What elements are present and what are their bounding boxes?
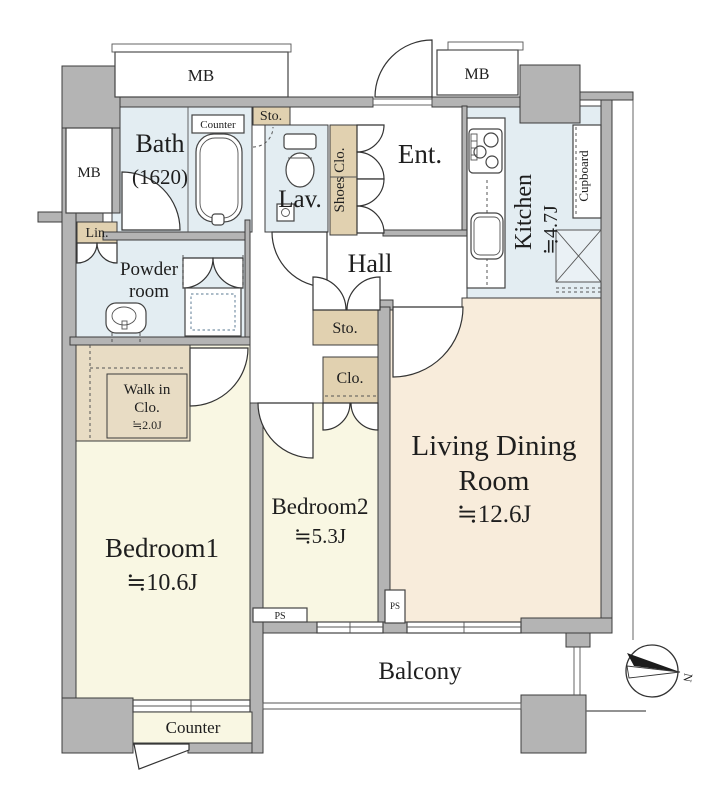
meter-box-right-label: MB [465,66,490,83]
storage-top-label: Sto. [260,109,282,124]
wall-top [120,97,373,107]
wall-right [601,100,612,633]
wall-entrance-kitchen [462,106,467,232]
entrance-door-arc [375,40,432,97]
powder-room-label-1: Powder [120,259,179,280]
meter-box-left-label: MB [77,165,100,181]
bedroom1-balcony-door [134,744,189,769]
wall-entrance-hall [383,230,467,236]
wall-bottomleft-column [62,698,133,753]
meter-box-right-trim [448,42,523,50]
bedroom-counter-label: Counter [166,718,221,737]
wall-bottom-c [521,618,612,633]
walk-in-closet-area-label: ≒2.0J [132,418,162,432]
living-dining-label-1: Living Dining [411,430,576,462]
wall-topleft-column [62,66,120,128]
linen-label: Lin. [86,226,109,241]
pipe-space-label-1: PS [274,611,285,622]
bath-label: Bath [135,129,184,158]
meter-box-top-trim [112,44,291,52]
balcony-bottom-rail [263,703,521,709]
bedroom2-label: Bedroom2 [271,494,368,519]
wall-top-2 [432,97,520,107]
kitchen-label: Kitchen [511,174,537,250]
meter-box-top-label: MB [188,66,214,85]
shoes-closet-door-arc [357,179,384,206]
compass-icon [626,645,680,697]
living-dining-area-label: ≒12.6J [457,501,532,528]
entrance-threshold [373,99,432,105]
bath-size-label: (1620) [132,165,188,189]
wall-powder-bottom [70,337,250,345]
entrance-label: Ent. [398,139,442,169]
wall-bottom-a [263,622,317,633]
north-label: N [680,672,695,683]
walk-in-closet-label-2: Clo. [134,400,159,416]
shoes-closet-door-arc [357,152,384,179]
walk-in-closet-label-1: Walk in [124,382,171,398]
wall-bedroom-divider [250,403,263,753]
lavatory-label: Lav. [278,186,322,213]
powder-room-label-2: room [129,281,169,302]
wall-topright-column [520,65,580,123]
wall-powder-right [245,220,250,340]
floor-plan: MB MB MB Bath (1620) Counter Sto. Lav. S… [0,0,706,800]
bedroom2-area-label: ≒5.3J [294,524,346,548]
shoes-closet-door-arc [357,125,384,152]
cupboard-label: Cupboard [576,150,591,202]
living-dining-label-2: Room [459,465,530,497]
shoes-closet-door-arc [357,206,384,233]
storage-door-arc [313,277,346,310]
bath-counter-label: Counter [200,119,236,131]
storage-door-arc [347,277,380,310]
wall-bottom-b [383,622,407,633]
pipe-space-label-2: PS [390,601,400,611]
wall-bath-powder [103,232,250,240]
wall-mb-side [112,128,120,213]
shoes-closet-label: Shoes Clo. [332,147,348,212]
floor-plan-drawing: MB MB MB Bath (1620) Counter Sto. Lav. S… [0,0,706,800]
balcony-label: Balcony [378,658,462,685]
wall-bottom-stub [188,743,252,753]
stove-icon [469,129,502,173]
wall-top-thin [580,92,633,100]
storage-mid-label: Sto. [332,320,357,337]
wall-left [62,128,76,713]
bedroom1-area-label: ≒10.6J [126,570,197,596]
wall-balcony-column [521,695,586,753]
sink-icon [471,213,503,259]
wall-balcony-tab [566,633,590,647]
bedroom1-label: Bedroom1 [105,533,219,563]
closet-mid-label: Clo. [336,370,363,387]
hall-label: Hall [348,249,393,278]
kitchen-area-label: ≒4.7J [540,205,562,255]
wall-bedroom2-living [378,307,390,622]
